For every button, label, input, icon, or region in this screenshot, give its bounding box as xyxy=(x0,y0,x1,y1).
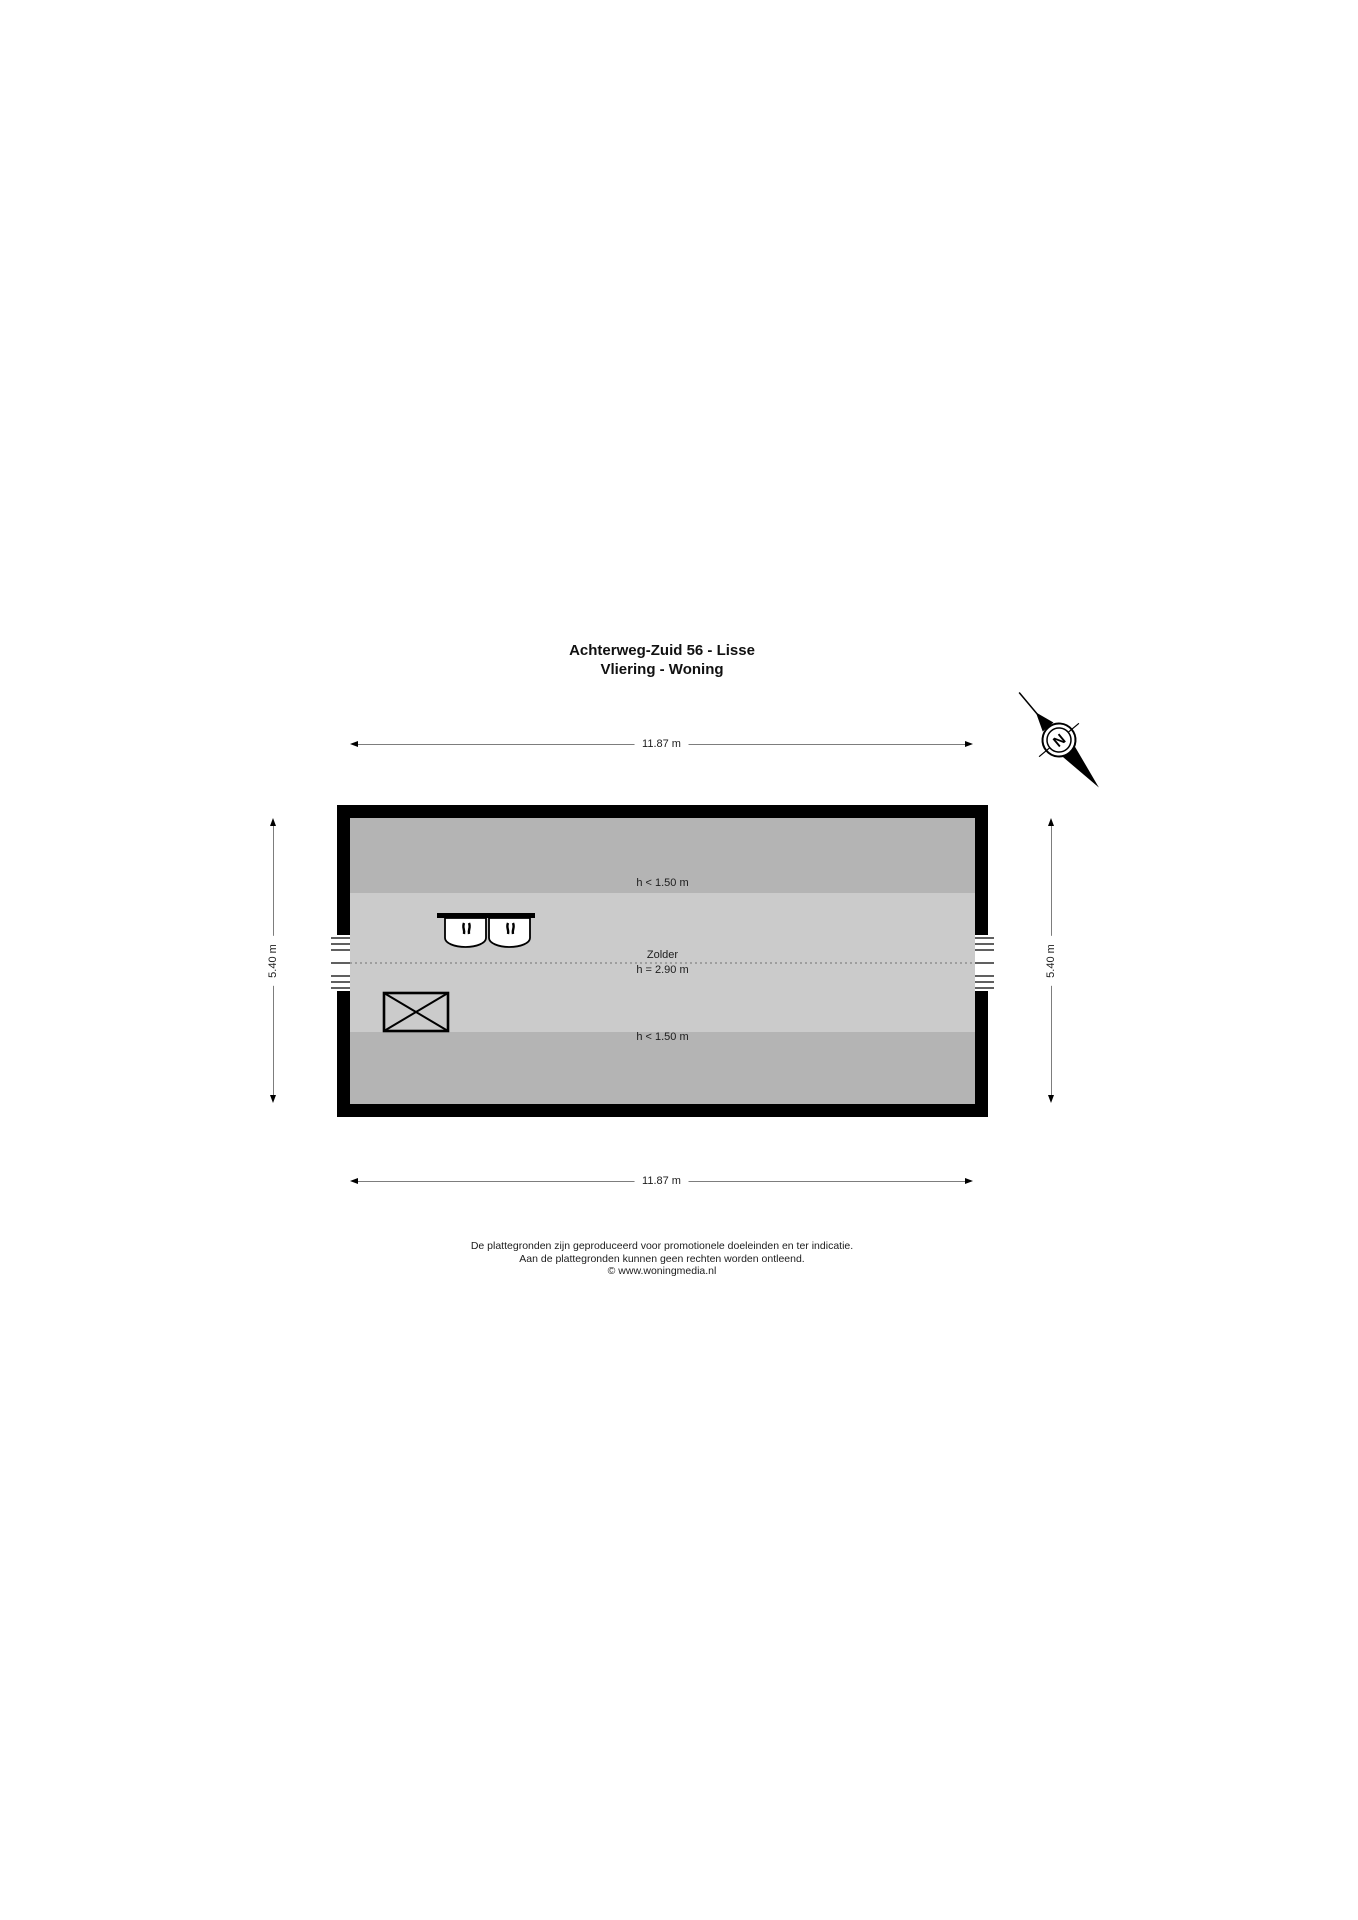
washbasin-left-icon xyxy=(445,918,486,947)
dimension-bottom-arrow-right-icon xyxy=(965,1178,973,1184)
window-left-icon xyxy=(331,935,350,991)
washbasin-right-icon xyxy=(489,918,530,947)
disclaimer-line-2: Aan de plattegronden kunnen geen rechten… xyxy=(471,1253,853,1266)
dimension-right-label: 5.40 m xyxy=(1045,936,1057,986)
dimension-right: 5.40 m xyxy=(1043,818,1059,1103)
disclaimer-line-1: De plattegronden zijn geproduceerd voor … xyxy=(471,1240,853,1253)
dimension-left-label: 5.40 m xyxy=(267,936,279,986)
title-floor: Vliering - Woning xyxy=(569,660,755,679)
copyright-line: © www.woningmedia.nl xyxy=(471,1265,853,1278)
ridge-height-label: h = 2.90 m xyxy=(337,964,988,977)
dimension-top-arrow-right-icon xyxy=(965,741,973,747)
dimension-left-arrow-bottom-icon xyxy=(270,1095,276,1103)
dimension-bottom: 11.87 m xyxy=(350,1173,973,1189)
floorplan-page: Achterweg-Zuid 56 - Lisse Vliering - Won… xyxy=(0,0,1358,1920)
footer-disclaimer: De plattegronden zijn geproduceerd voor … xyxy=(471,1240,853,1278)
dimension-top: 11.87 m xyxy=(350,736,973,752)
dimension-right-arrow-top-icon xyxy=(1048,818,1054,826)
dimension-bottom-arrow-left-icon xyxy=(350,1178,358,1184)
window-right-icon xyxy=(975,935,994,991)
washbasin-unit xyxy=(437,913,535,947)
floor-plan: h < 1.50 m Zolder h = 2.90 m h < 1.50 m xyxy=(337,805,988,1117)
low-headroom-label-bottom: h < 1.50 m xyxy=(337,1031,988,1044)
room-name-label: Zolder xyxy=(337,949,988,962)
dimension-right-arrow-bottom-icon xyxy=(1048,1095,1054,1103)
dimension-left-arrow-top-icon xyxy=(270,818,276,826)
crossed-box-symbol xyxy=(384,993,448,1031)
title-address: Achterweg-Zuid 56 - Lisse xyxy=(569,641,755,660)
dimension-bottom-label: 11.87 m xyxy=(634,1175,689,1187)
page-title: Achterweg-Zuid 56 - Lisse Vliering - Won… xyxy=(569,641,755,679)
dimension-left: 5.40 m xyxy=(265,818,281,1103)
dimension-top-label: 11.87 m xyxy=(634,738,689,750)
dimension-top-arrow-left-icon xyxy=(350,741,358,747)
compass-north-icon: N xyxy=(1000,678,1122,806)
low-headroom-label-top: h < 1.50 m xyxy=(337,877,988,890)
